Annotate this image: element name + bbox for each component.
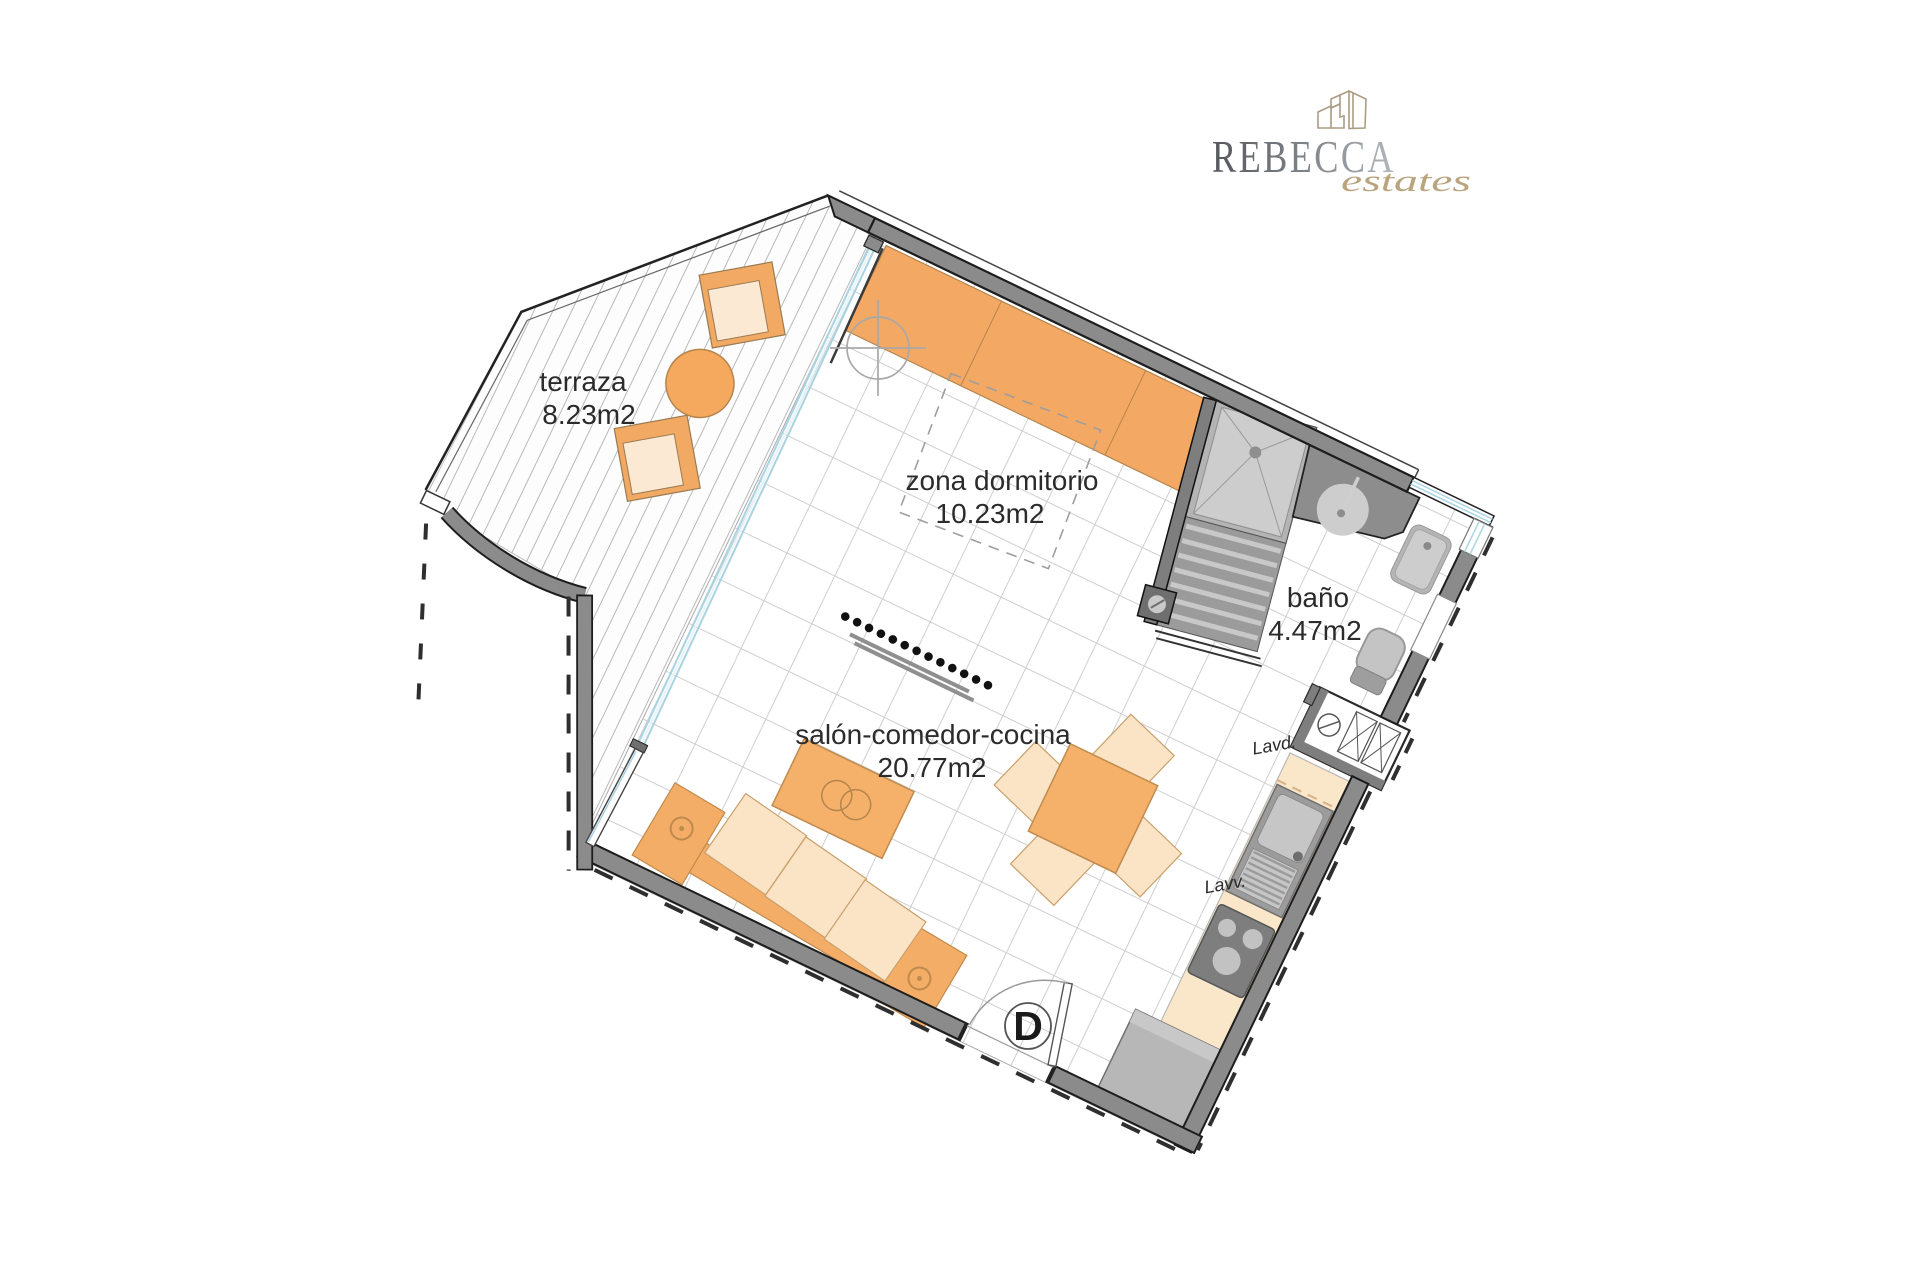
svg-text:baño: baño (1287, 582, 1349, 613)
svg-text:salón-comedor-cocina: salón-comedor-cocina (795, 719, 1071, 750)
svg-text:terraza: terraza (539, 366, 627, 397)
svg-text:zona dormitorio: zona dormitorio (906, 465, 1099, 496)
svg-text:10.23m2: 10.23m2 (936, 498, 1045, 529)
svg-text:20.77m2: 20.77m2 (878, 752, 987, 783)
svg-text:D: D (1013, 1003, 1043, 1049)
svg-text:8.23m2: 8.23m2 (542, 399, 635, 430)
svg-text:4.47m2: 4.47m2 (1268, 615, 1361, 646)
svg-text:estates: estates (1341, 163, 1471, 198)
